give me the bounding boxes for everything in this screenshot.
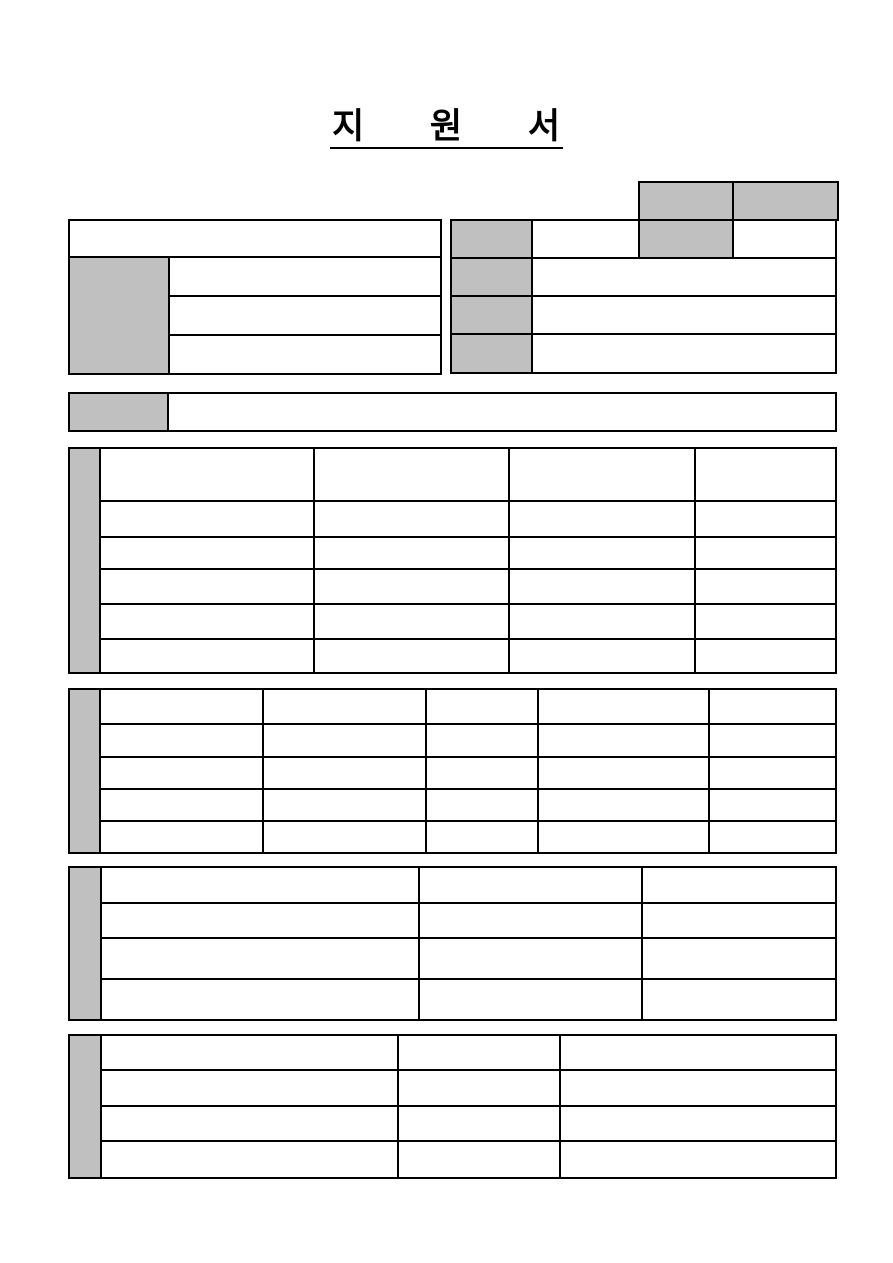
label-cell (733, 182, 838, 220)
field-cell[interactable] (695, 639, 836, 673)
field-cell[interactable] (101, 1141, 398, 1178)
field-cell[interactable] (709, 789, 836, 821)
label-cell (69, 867, 101, 1020)
field-cell[interactable] (100, 639, 314, 673)
field-cell[interactable] (426, 821, 538, 853)
field-cell[interactable] (398, 1106, 560, 1141)
field-cell[interactable] (419, 903, 642, 938)
field-cell[interactable] (538, 724, 709, 757)
field-cell[interactable] (263, 724, 426, 757)
field-cell[interactable] (538, 689, 709, 724)
field-cell[interactable] (426, 789, 538, 821)
field-cell[interactable] (560, 1035, 836, 1070)
label-cell (451, 334, 532, 373)
label-cell (451, 296, 532, 334)
left-info-table (68, 219, 442, 375)
field-cell[interactable] (101, 903, 419, 938)
field-cell[interactable] (100, 604, 314, 639)
label-cell (639, 182, 733, 220)
field-cell[interactable] (419, 979, 642, 1020)
field-cell[interactable] (263, 821, 426, 853)
field-cell[interactable] (314, 569, 509, 604)
field-cell[interactable] (101, 979, 419, 1020)
field-cell[interactable] (398, 1141, 560, 1178)
field-cell[interactable] (560, 1106, 836, 1141)
field-cell[interactable] (263, 789, 426, 821)
right-info-table (450, 219, 837, 374)
field-cell[interactable] (100, 821, 263, 853)
field-cell[interactable] (709, 821, 836, 853)
field-cell[interactable] (509, 448, 695, 501)
field-cell[interactable] (101, 1070, 398, 1106)
application-form-page: 지 원 서 (0, 0, 893, 1263)
field-cell[interactable] (538, 757, 709, 789)
section-table-b (68, 688, 837, 854)
label-cell (69, 393, 168, 431)
field-cell[interactable] (100, 757, 263, 789)
field-cell[interactable] (314, 604, 509, 639)
field-cell[interactable] (695, 501, 836, 537)
field-cell[interactable] (101, 867, 419, 903)
field-cell[interactable] (314, 537, 509, 569)
field-cell[interactable] (169, 257, 441, 296)
field-cell[interactable] (642, 903, 836, 938)
field-cell[interactable] (101, 1106, 398, 1141)
field-cell[interactable] (426, 689, 538, 724)
field-cell[interactable] (426, 724, 538, 757)
field-cell[interactable] (509, 639, 695, 673)
label-cell (451, 258, 532, 296)
field-cell[interactable] (314, 639, 509, 673)
field-cell[interactable] (532, 258, 836, 296)
field-cell[interactable] (100, 569, 314, 604)
field-cell[interactable] (538, 789, 709, 821)
field-cell[interactable] (169, 335, 441, 374)
page-title: 지 원 서 (330, 109, 563, 149)
field-cell[interactable] (532, 296, 836, 334)
field-cell[interactable] (642, 938, 836, 979)
field-cell[interactable] (695, 604, 836, 639)
section-table-d (68, 1034, 837, 1179)
field-cell[interactable] (695, 537, 836, 569)
label-cell (69, 448, 100, 673)
field-cell[interactable] (642, 867, 836, 903)
label-cell (69, 689, 100, 853)
field-cell[interactable] (100, 689, 263, 724)
label-cell (69, 257, 169, 374)
field-cell[interactable] (709, 757, 836, 789)
field-cell[interactable] (709, 689, 836, 724)
field-cell[interactable] (100, 724, 263, 757)
field-cell[interactable] (532, 220, 639, 258)
section-table-a (68, 447, 837, 674)
field-cell[interactable] (168, 393, 836, 431)
field-cell[interactable] (642, 979, 836, 1020)
field-cell[interactable] (538, 821, 709, 853)
field-cell[interactable] (509, 537, 695, 569)
label-cell (451, 220, 532, 258)
top-right-header-table (638, 181, 839, 221)
field-cell[interactable] (398, 1035, 560, 1070)
single-row-table (68, 392, 837, 432)
field-cell[interactable] (101, 938, 419, 979)
field-cell[interactable] (419, 938, 642, 979)
field-cell[interactable] (314, 448, 509, 501)
section-table-c (68, 866, 837, 1021)
field-cell[interactable] (101, 1035, 398, 1070)
field-cell[interactable] (100, 537, 314, 569)
field-cell[interactable] (263, 757, 426, 789)
field-cell[interactable] (169, 296, 441, 335)
field-cell[interactable] (695, 569, 836, 604)
label-cell (639, 220, 733, 258)
field-cell[interactable] (69, 220, 441, 257)
field-cell[interactable] (314, 501, 509, 537)
field-cell[interactable] (398, 1070, 560, 1106)
field-cell[interactable] (560, 1141, 836, 1178)
field-cell[interactable] (733, 220, 836, 258)
field-cell[interactable] (100, 789, 263, 821)
label-cell (69, 1035, 101, 1178)
field-cell[interactable] (100, 448, 314, 501)
field-cell[interactable] (100, 501, 314, 537)
field-cell[interactable] (560, 1070, 836, 1106)
field-cell[interactable] (509, 501, 695, 537)
field-cell[interactable] (532, 334, 836, 373)
field-cell[interactable] (419, 867, 642, 903)
field-cell[interactable] (509, 604, 695, 639)
field-cell[interactable] (709, 724, 836, 757)
field-cell[interactable] (263, 689, 426, 724)
field-cell[interactable] (509, 569, 695, 604)
field-cell[interactable] (426, 757, 538, 789)
field-cell[interactable] (695, 448, 836, 501)
